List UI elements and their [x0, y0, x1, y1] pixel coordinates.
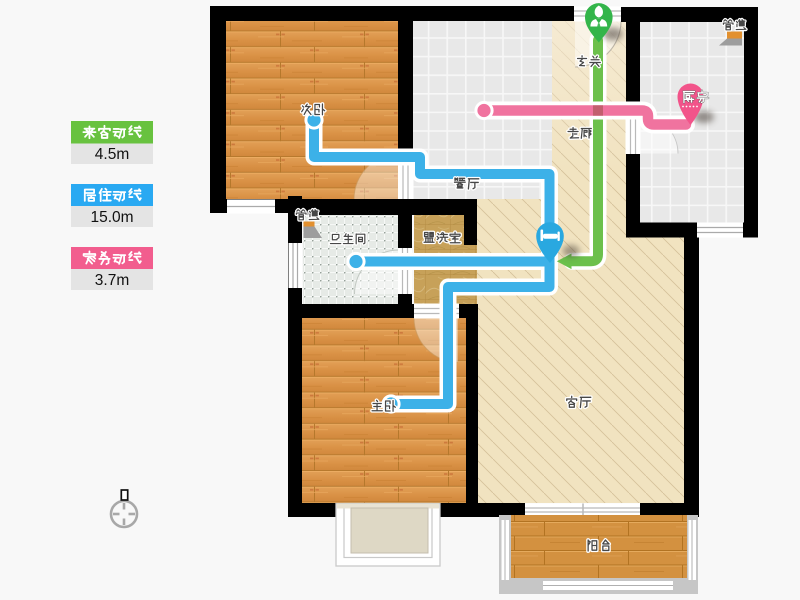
svg-text:3.7m: 3.7m [95, 272, 129, 289]
svg-text:4.5m: 4.5m [95, 146, 129, 163]
svg-text:15.0m: 15.0m [90, 209, 133, 226]
